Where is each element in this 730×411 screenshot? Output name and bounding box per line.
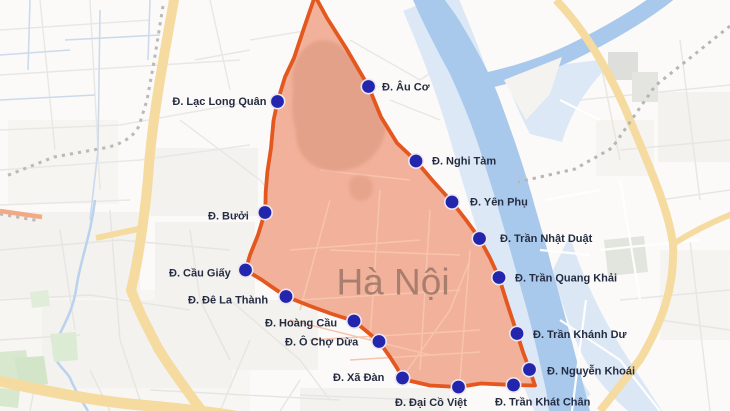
svg-text:Đ. Đê La Thành: Đ. Đê La Thành <box>188 295 268 307</box>
svg-text:Đ. Trần Khát Chân: Đ. Trần Khát Chân <box>495 397 591 409</box>
svg-text:Đ. Cầu Giấy: Đ. Cầu Giấy <box>169 268 232 280</box>
svg-text:Đ. Hoàng Cầu: Đ. Hoàng Cầu <box>265 318 337 330</box>
svg-text:Đ. Ô Chợ Dừa: Đ. Ô Chợ Dừa <box>285 336 359 349</box>
svg-text:Đ. Lạc Long Quân: Đ. Lạc Long Quân <box>172 96 266 108</box>
svg-text:Đ. Nguyễn Khoái: Đ. Nguyễn Khoái <box>547 365 635 378</box>
svg-text:Đ. Xã Đàn: Đ. Xã Đàn <box>333 372 385 384</box>
svg-text:Đ. Bưởi: Đ. Bưởi <box>208 211 249 223</box>
svg-text:Đ. Yên Phụ: Đ. Yên Phụ <box>470 197 528 209</box>
svg-text:Đ. Âu Cơ: Đ. Âu Cơ <box>382 81 430 94</box>
svg-text:Đ. Trần Quang Khải: Đ. Trần Quang Khải <box>515 273 617 285</box>
svg-text:Hà Nội: Hà Nội <box>336 262 449 303</box>
svg-text:Đ. Trần Nhật Duật: Đ. Trần Nhật Duật <box>500 233 593 245</box>
svg-text:Đ. Nghi Tàm: Đ. Nghi Tàm <box>432 156 496 168</box>
svg-text:Đ. Trần Khánh Dư: Đ. Trần Khánh Dư <box>533 329 627 341</box>
svg-text:Đ. Đại Cồ Việt: Đ. Đại Cồ Việt <box>395 397 467 409</box>
